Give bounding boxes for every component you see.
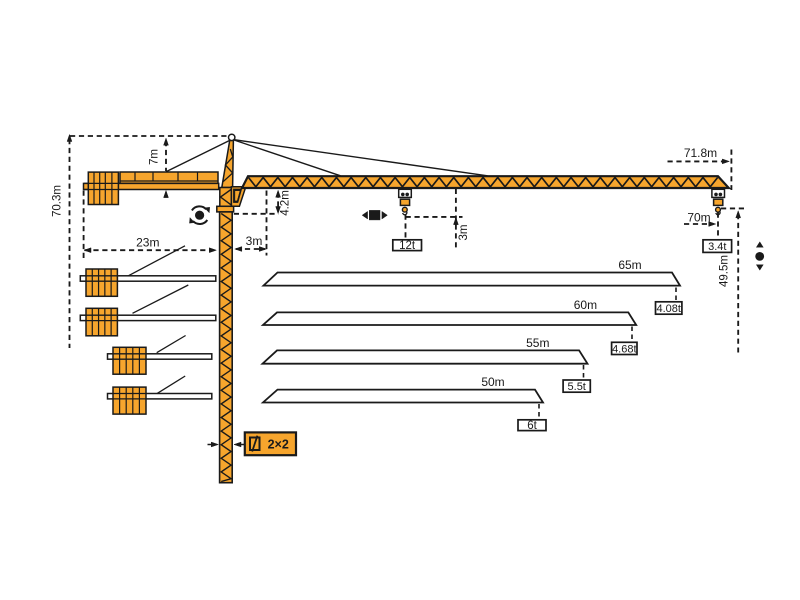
svg-text:4.2m: 4.2m [280,190,292,216]
svg-text:5.5t: 5.5t [568,381,586,393]
svg-text:55m: 55m [526,336,549,350]
svg-text:4.08t: 4.08t [656,303,680,315]
svg-text:70.3m: 70.3m [52,185,64,217]
svg-text:12t: 12t [399,240,416,252]
svg-text:60m: 60m [574,298,597,312]
svg-text:23m: 23m [136,236,159,250]
svg-text:3.4t: 3.4t [708,241,726,253]
svg-text:6t: 6t [527,420,537,432]
svg-text:4.68t: 4.68t [612,343,636,355]
svg-text:49.5m: 49.5m [719,255,731,287]
svg-text:7m: 7m [149,149,161,165]
svg-text:71.8m: 71.8m [684,146,717,160]
svg-text:3m: 3m [246,234,263,248]
svg-text:3m: 3m [458,225,470,241]
svg-text:70m: 70m [687,210,710,224]
svg-text:50m: 50m [481,375,504,389]
svg-text:65m: 65m [618,258,641,272]
svg-text:2×2: 2×2 [268,438,289,452]
